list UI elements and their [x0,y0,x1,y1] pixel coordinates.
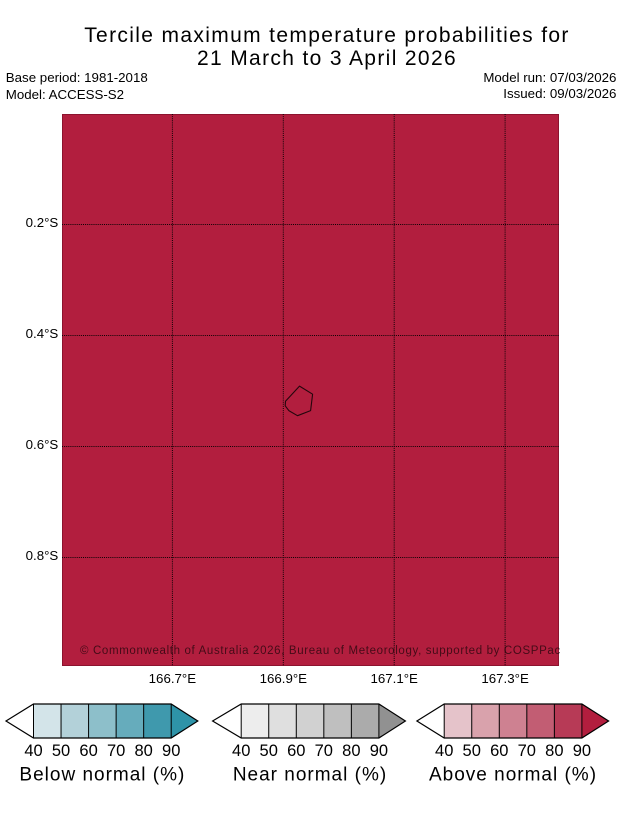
svg-text:90: 90 [162,742,180,760]
svg-text:50: 50 [260,742,278,760]
svg-text:80: 80 [342,742,360,760]
svg-text:40: 40 [435,742,453,760]
svg-text:50: 50 [52,742,70,760]
svg-text:Above normal (%): Above normal (%) [429,765,597,786]
svg-text:70: 70 [315,742,333,760]
svg-text:70: 70 [518,742,536,760]
svg-text:Below normal (%): Below normal (%) [19,765,185,786]
svg-text:60: 60 [490,742,508,760]
svg-text:50: 50 [463,742,481,760]
svg-text:40: 40 [232,742,250,760]
svg-text:90: 90 [573,742,591,760]
svg-text:70: 70 [107,742,125,760]
svg-text:80: 80 [134,742,152,760]
svg-text:80: 80 [545,742,563,760]
svg-text:Near normal (%): Near normal (%) [233,765,387,786]
svg-text:60: 60 [287,742,305,760]
svg-text:40: 40 [24,742,42,760]
svg-text:90: 90 [370,742,388,760]
svg-text:60: 60 [79,742,97,760]
